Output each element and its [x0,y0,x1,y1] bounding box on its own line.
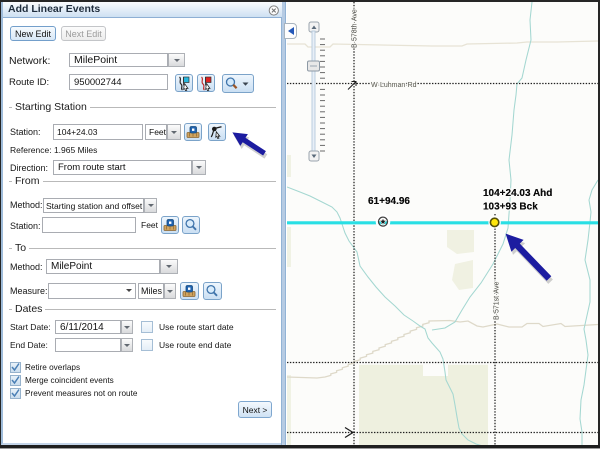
svg-text:W·Luhman·Rd: W·Luhman·Rd [371,82,417,89]
svg-text:B·571st·Ave: B·571st·Ave [494,282,501,320]
svg-text:61+94.96: 61+94.96 [368,196,410,207]
svg-text:103+93 Bck: 103+93 Bck [483,202,538,213]
svg-text:B·578th·Ave: B·578th·Ave [352,9,359,48]
svg-text:104+24.03 Ahd: 104+24.03 Ahd [483,188,552,199]
